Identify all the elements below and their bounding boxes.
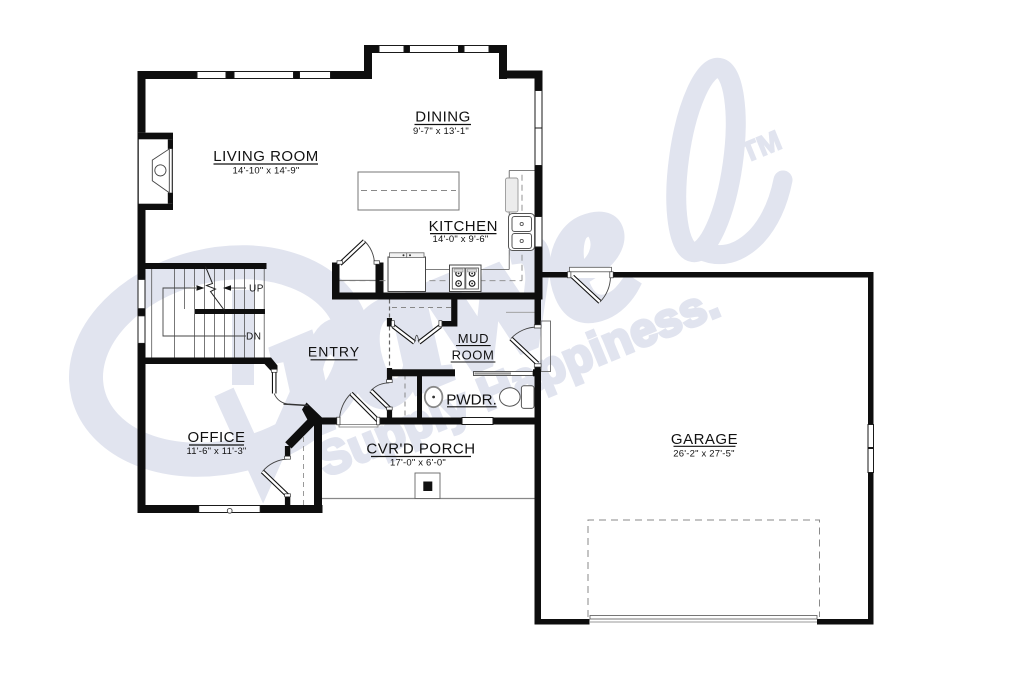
svg-text:UP: UP — [249, 284, 264, 295]
svg-text:GARAGE: GARAGE — [671, 431, 738, 448]
svg-text:14'-10" x 14'-9": 14'-10" x 14'-9" — [233, 166, 300, 177]
svg-text:OFFICE: OFFICE — [188, 429, 246, 446]
svg-text:ENTRY: ENTRY — [308, 344, 360, 360]
svg-text:ROOM: ROOM — [452, 348, 495, 363]
svg-text:MUD: MUD — [458, 331, 489, 346]
svg-text:26'-2" x 27'-5": 26'-2" x 27'-5" — [673, 449, 734, 460]
svg-text:PWDR.: PWDR. — [446, 392, 497, 409]
svg-text:CVR'D PORCH: CVR'D PORCH — [366, 441, 475, 458]
svg-text:DN: DN — [246, 332, 261, 343]
svg-text:9'-7" x 13'-1": 9'-7" x 13'-1" — [413, 126, 469, 137]
svg-text:LIVING ROOM: LIVING ROOM — [213, 148, 319, 165]
svg-text:17'-0" x 6'-0": 17'-0" x 6'-0" — [390, 458, 446, 469]
svg-text:11'-6" x 11'-3": 11'-6" x 11'-3" — [186, 446, 246, 457]
svg-text:KITCHEN: KITCHEN — [429, 218, 498, 235]
svg-text:14'-0" x 9'-6": 14'-0" x 9'-6" — [433, 234, 489, 245]
svg-text:DINING: DINING — [415, 109, 471, 126]
